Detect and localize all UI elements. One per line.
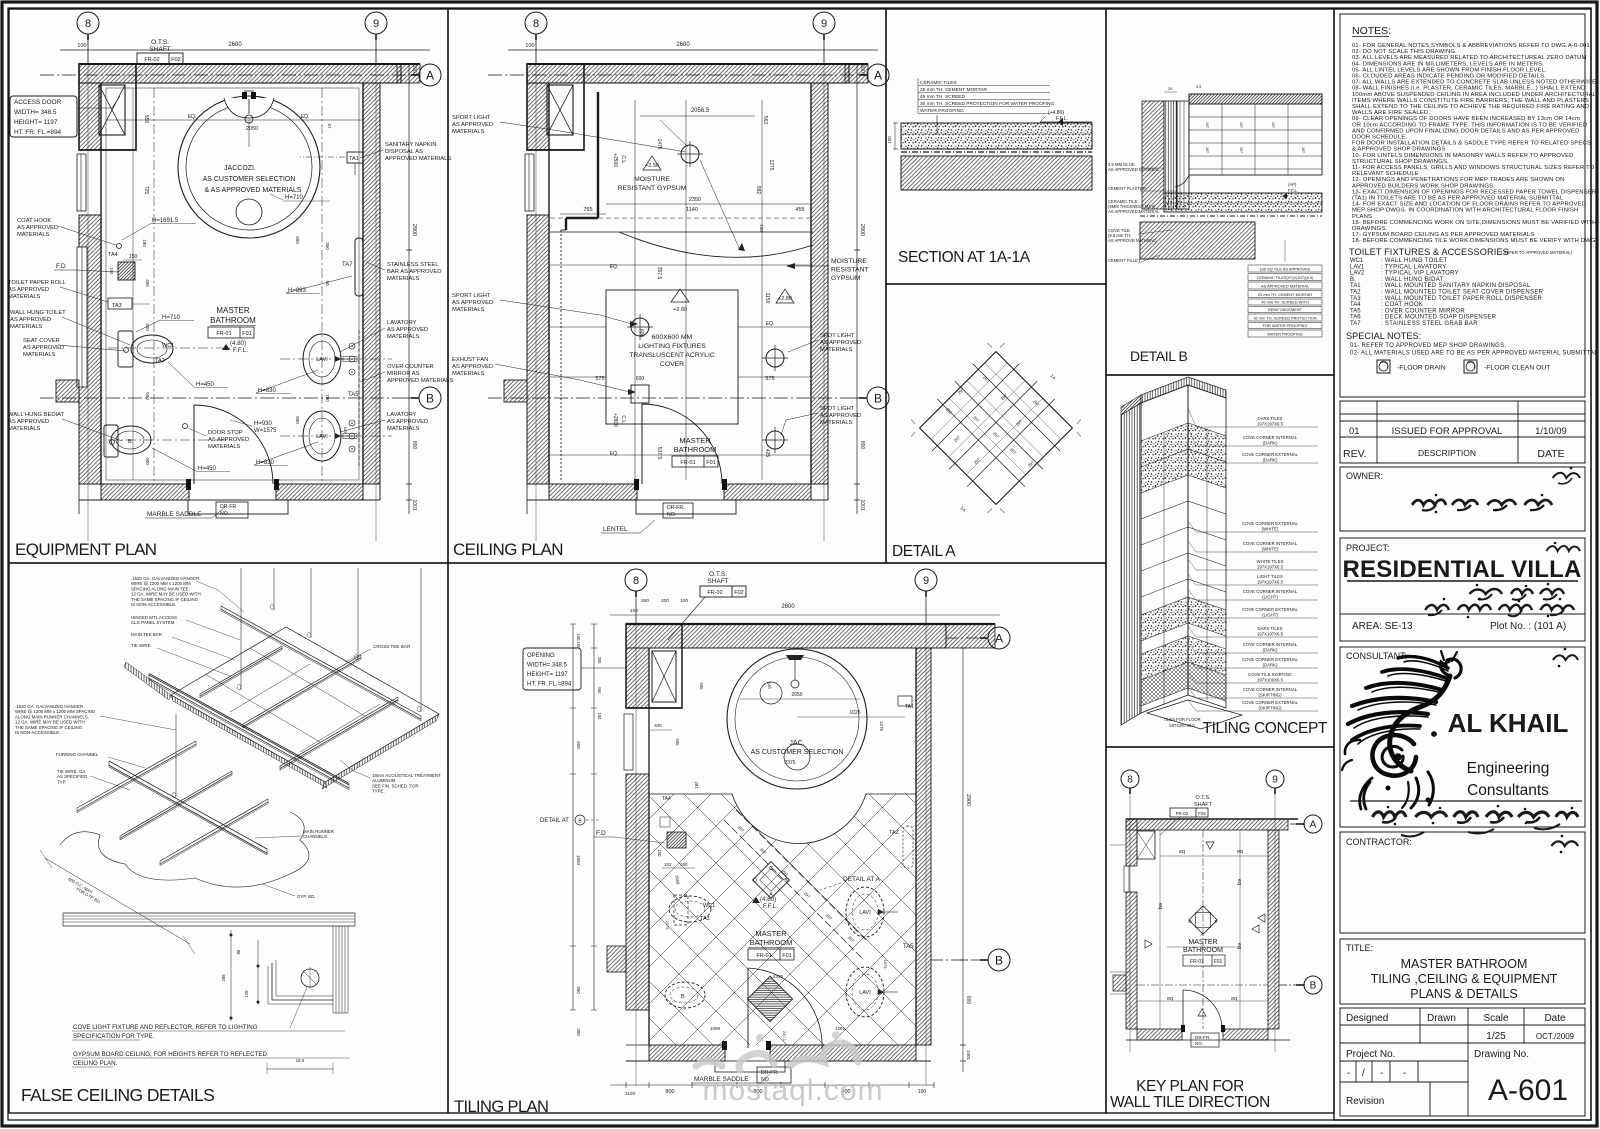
- svg-text:197: 197: [1271, 122, 1275, 128]
- svg-text:AS APPROVED: AS APPROVED: [387, 327, 428, 333]
- svg-text:197X100X6.5: 197X100X6.5: [1257, 678, 1284, 683]
- svg-text:AS APPROVED: AS APPROVED: [820, 340, 861, 346]
- svg-text:B.: B.: [1350, 277, 1356, 283]
- svg-text:B: B: [1214, 919, 1217, 924]
- svg-text:25 mm TH. CEMENT MORTAR: 25 mm TH. CEMENT MORTAR: [920, 87, 987, 93]
- svg-text:SPECIFICATION FOR TYPE.: SPECIFICATION FOR TYPE.: [73, 1033, 155, 1040]
- svg-text:563: 563: [762, 116, 768, 125]
- svg-text:H=1691.5: H=1691.5: [152, 218, 179, 224]
- svg-text:COAT HOOK: COAT HOOK: [17, 218, 51, 224]
- svg-text:GYP. BD.: GYP. BD.: [297, 894, 315, 899]
- svg-text:A: A: [1200, 932, 1203, 937]
- svg-text:COVE CORNER EXTERNAL: COVE CORNER EXTERNAL: [1242, 657, 1298, 662]
- svg-text:600: 600: [145, 392, 150, 400]
- svg-text:eq: eq: [1236, 879, 1242, 885]
- svg-text:800: 800: [411, 441, 417, 450]
- svg-text:H=710: H=710: [162, 315, 181, 321]
- svg-text:100: 100: [597, 713, 602, 721]
- svg-text:ACCESS DOOR: ACCESS DOOR: [14, 99, 62, 106]
- svg-text:SHAFT: SHAFT: [707, 578, 728, 585]
- svg-text:TA1: TA1: [349, 156, 359, 162]
- svg-text:1150: 1150: [764, 293, 770, 304]
- svg-text:JACCOZI.: JACCOZI.: [224, 165, 256, 172]
- svg-text:AS APPROVED: AS APPROVED: [23, 345, 64, 351]
- svg-text:1001: 1001: [411, 64, 417, 75]
- svg-text:180: 180: [142, 239, 147, 247]
- svg-text:9: 9: [923, 575, 929, 587]
- svg-text:HEIGHT= 1197: HEIGHT= 1197: [527, 672, 568, 678]
- svg-text:AS APPROVED: AS APPROVED: [452, 122, 493, 128]
- svg-text:CEMENT FILLET: CEMENT FILLET: [1108, 258, 1141, 263]
- svg-text:: STAINLESS STEEL GRAB BAR: : STAINLESS STEEL GRAB BAR: [1381, 321, 1478, 327]
- svg-text:17- GYPSUM BOARD CEILING AS P: 17- GYPSUM BOARD CEILING AS PER APPROVED…: [1352, 232, 1535, 238]
- svg-text:13- EXACT DIMENSION OF OPENIN: 13- EXACT DIMENSION OF OPENINGS FOR RECE…: [1352, 189, 1596, 195]
- svg-text:1001: 1001: [859, 64, 865, 75]
- svg-text:AS CUSTOMER SELECTION: AS CUSTOMER SELECTION: [203, 176, 296, 183]
- svg-text:18- BEFORE COMMENCING WORK ON: 18- BEFORE COMMENCING WORK ON SITE,DIMEN…: [1352, 220, 1597, 226]
- svg-text:TA4: TA4: [662, 796, 671, 802]
- svg-text:COVER: COVER: [660, 361, 684, 368]
- svg-text:AS APPROVED: AS APPROVED: [8, 419, 49, 425]
- svg-text:(SKIRTING): (SKIRTING): [1258, 693, 1282, 698]
- svg-text:F.F.L.: F.F.L.: [1288, 188, 1298, 193]
- svg-text:IS NON-ACCESSIBLE.: IS NON-ACCESSIBLE.: [131, 602, 176, 607]
- svg-text:A: A: [995, 631, 1003, 645]
- svg-text:455: 455: [795, 207, 804, 213]
- svg-text:WALL HUNG TOILET: WALL HUNG TOILET: [10, 310, 66, 316]
- svg-text:WHITE TILES: WHITE TILES: [1257, 559, 1284, 564]
- svg-text:LAVI: LAVI: [316, 357, 328, 363]
- svg-text:COVE TILE SKIRTING: COVE TILE SKIRTING: [1248, 672, 1292, 677]
- svg-text:1/25: 1/25: [1486, 1031, 1506, 1042]
- svg-text:12- OPENINGS AND PENETRATIONS: 12- OPENINGS AND PENETRATIONS FOR MEP TR…: [1352, 177, 1564, 183]
- svg-text:(DARK): (DARK): [1263, 648, 1278, 653]
- svg-text:AS APPROVED: AS APPROVED: [820, 413, 861, 419]
- svg-text:05- ALL LINTEL LEVELS ARE SHO: 05- ALL LINTEL LEVELS ARE SHOWN FROM FIN…: [1352, 67, 1547, 73]
- svg-text:SHAFT: SHAFT: [1194, 802, 1213, 808]
- svg-text:MASTER: MASTER: [679, 436, 711, 445]
- svg-text:WC1: WC1: [703, 903, 715, 909]
- svg-text:1001: 1001: [859, 499, 865, 510]
- svg-text:H=930: H=930: [254, 421, 273, 427]
- svg-text:WATER PROOFING: WATER PROOFING: [1267, 331, 1302, 336]
- svg-text:( REFER TO APPROVED MATERIAL): ( REFER TO APPROVED MATERIAL): [1501, 250, 1573, 255]
- svg-text:(4.80): (4.80): [230, 340, 246, 347]
- svg-text:(LIGHT): (LIGHT): [1262, 613, 1278, 618]
- svg-text:TILING PLAN: TILING PLAN: [454, 1098, 548, 1116]
- svg-text:REV.: REV.: [1343, 448, 1367, 460]
- svg-text:NO.: NO.: [667, 512, 676, 518]
- svg-text:(DARK): (DARK): [1263, 458, 1278, 463]
- svg-text:10- FOR LINTELS DIMENSIONS IN: 10- FOR LINTELS DIMENSIONS IN MASONRY WA…: [1352, 153, 1574, 159]
- svg-text:DOOR STOP: DOOR STOP: [208, 430, 243, 436]
- svg-text:TA2: TA2: [1350, 290, 1361, 296]
- svg-text:TA7: TA7: [342, 262, 353, 268]
- svg-text:F.F.L.: F.F.L.: [233, 347, 248, 354]
- svg-text:& AS APPROVED MATERIALS: & AS APPROVED MATERIALS: [204, 187, 301, 194]
- svg-text:Drawn: Drawn: [1427, 1013, 1456, 1024]
- svg-text:1069: 1069: [710, 1026, 721, 1031]
- svg-text:COVE CORNER INTERNAL: COVE CORNER INTERNAL: [1243, 435, 1298, 440]
- svg-text:MOISTURE: MOISTURE: [831, 258, 867, 265]
- svg-text:PROJECT:: PROJECT:: [1346, 543, 1390, 553]
- svg-text:2600: 2600: [676, 42, 690, 48]
- svg-text:CONTRACTOR:: CONTRACTOR:: [1346, 837, 1412, 847]
- svg-text:288: 288: [221, 974, 226, 982]
- svg-text:LIGHTING FIXTURES: LIGHTING FIXTURES: [638, 343, 706, 350]
- svg-text:9: 9: [1272, 775, 1278, 786]
- svg-text:460: 460: [576, 986, 581, 994]
- svg-text:HT. FR. FL.=894: HT. FR. FL.=894: [527, 682, 572, 688]
- svg-text:F01: F01: [706, 460, 715, 466]
- svg-text:2600: 2600: [228, 42, 242, 48]
- svg-text:08- WALL FINISHES (i.e. PLAST: 08- WALL FINISHES (i.e. PLASTER, CERAMIC…: [1352, 86, 1585, 92]
- svg-text:128: 128: [244, 990, 249, 998]
- svg-text:1140: 1140: [686, 207, 698, 213]
- svg-text:550: 550: [699, 683, 704, 691]
- svg-text:B: B: [1310, 981, 1317, 992]
- svg-text:DATE: DATE: [1537, 448, 1564, 460]
- svg-text:AS APPROVED: AS APPROVED: [452, 300, 493, 306]
- svg-text:400: 400: [145, 457, 150, 465]
- svg-text:MASTER: MASTER: [1188, 939, 1217, 946]
- svg-text:: TYPICAL LAVATORY: : TYPICAL LAVATORY: [1381, 264, 1447, 270]
- svg-text:TOILET PAPER ROLL: TOILET PAPER ROLL: [8, 280, 66, 286]
- svg-text:450: 450: [597, 687, 602, 695]
- svg-text:800: 800: [295, 416, 300, 424]
- svg-text:100: 100: [887, 136, 892, 144]
- svg-text:1001: 1001: [966, 1050, 971, 1061]
- svg-text:APPROVED MATERIALS: APPROVED MATERIALS: [387, 378, 453, 384]
- svg-text:LAVI: LAVI: [316, 434, 328, 440]
- svg-text:COVE CORNER EXTERNAL: COVE CORNER EXTERNAL: [1242, 607, 1298, 612]
- svg-text:SPORT LIGHT: SPORT LIGHT: [452, 293, 491, 299]
- svg-text:A: A: [874, 68, 882, 82]
- svg-text:537.5: 537.5: [656, 447, 662, 460]
- svg-text:MOISTURE: MOISTURE: [634, 176, 670, 183]
- svg-text:F01: F01: [242, 331, 251, 337]
- svg-text:1025: 1025: [849, 710, 860, 716]
- svg-text:PLANS & DETAILS: PLANS & DETAILS: [1410, 987, 1517, 1001]
- svg-text:09- CLEAR OPENINGS OF DOORS H: 09- CLEAR OPENINGS OF DOORS HAVE BEEN IN…: [1352, 116, 1580, 122]
- svg-text:4.5: 4.5: [1196, 85, 1201, 89]
- svg-text:: TYPICAL VIP LAVATORY: : TYPICAL VIP LAVATORY: [1381, 271, 1459, 277]
- svg-text:F.D: F.D: [56, 263, 66, 270]
- svg-text:TA4: TA4: [1350, 302, 1361, 308]
- svg-text:HT. FR. FL.=894: HT. FR. FL.=894: [14, 129, 62, 136]
- svg-text:2375: 2375: [665, 921, 670, 931]
- svg-text:(WHITE): (WHITE): [1262, 547, 1279, 552]
- svg-text:+2.80: +2.80: [778, 296, 792, 302]
- svg-text:H=710: H=710: [285, 195, 304, 201]
- svg-text:BATHROOM: BATHROOM: [750, 938, 793, 947]
- svg-text:07- ALL WALLS ARE EXTENDED TO: 07- ALL WALLS ARE EXTENDED TO CONCRETE S…: [1352, 80, 1596, 86]
- svg-text:WALL HUNG BEDIAT: WALL HUNG BEDIAT: [8, 412, 65, 418]
- svg-text:197: 197: [1239, 147, 1243, 153]
- svg-text:8: 8: [533, 18, 539, 30]
- svg-text:COVE CORNER EXTERNAL: COVE CORNER EXTERNAL: [1242, 452, 1298, 457]
- svg-text:AS APPROVED: AS APPROVED: [10, 317, 51, 323]
- svg-text:RESISTANT: RESISTANT: [831, 267, 869, 274]
- svg-text:03- ALL LEVELS ARE MEASURED R: 03- ALL LEVELS ARE MEASURED RELATED TO A…: [1352, 55, 1587, 61]
- svg-text:/: /: [1362, 1068, 1365, 1079]
- svg-text:EXHUST FAN: EXHUST FAN: [452, 357, 488, 363]
- svg-text:TAZ: TAZ: [889, 830, 900, 836]
- svg-text:MAIN TEE BAR: MAIN TEE BAR: [131, 632, 162, 637]
- svg-text:TA3: TA3: [1350, 296, 1361, 302]
- svg-text:18- BEFORE COMMENCING TILE WO: 18- BEFORE COMMENCING TILE WORK DIMENSIO…: [1352, 238, 1598, 244]
- svg-text:100 SQ TILE AS APPROVED: 100 SQ TILE AS APPROVED: [1260, 266, 1311, 271]
- svg-text:SPOT LIGHT: SPOT LIGHT: [820, 333, 855, 339]
- svg-text:SPORT LIGHT: SPORT LIGHT: [452, 115, 491, 121]
- svg-text:& APPROVED SHOP DRAWINGS: & APPROVED SHOP DRAWINGS: [1352, 147, 1446, 153]
- svg-text:LIGHT TILES: LIGHT TILES: [1257, 574, 1283, 579]
- svg-text:FR-02: FR-02: [144, 57, 159, 63]
- svg-text:297X297X6.5: 297X297X6.5: [1169, 723, 1195, 728]
- svg-text:AS APPROVED: AS APPROVED: [17, 225, 58, 231]
- svg-text:COVE CORNER EXTERNAL: COVE CORNER EXTERNAL: [1242, 521, 1298, 526]
- svg-text:C.L.: C.L.: [620, 415, 626, 424]
- svg-text:MATERIALS: MATERIALS: [387, 426, 420, 432]
- svg-text:TA2: TA2: [155, 358, 165, 364]
- svg-text:CERAMIC TILES: CERAMIC TILES: [920, 80, 957, 86]
- svg-text:LAVATORY: LAVATORY: [387, 412, 417, 418]
- svg-text:197X197X6.5: 197X197X6.5: [1257, 422, 1284, 427]
- svg-text:MASTER: MASTER: [216, 306, 250, 315]
- svg-text:TA5: TA5: [1350, 308, 1361, 314]
- svg-text:197X197X6.5: 197X197X6.5: [1257, 632, 1284, 637]
- svg-text:+2800: +2800: [612, 413, 618, 427]
- svg-text:TYPE.: TYPE.: [372, 789, 385, 794]
- svg-text:600: 600: [576, 741, 581, 749]
- svg-text:AS APPROVED MATERIAL: AS APPROVED MATERIAL: [1108, 209, 1160, 214]
- svg-text:800: 800: [665, 1089, 674, 1095]
- svg-text:OWNER:: OWNER:: [1346, 471, 1383, 481]
- svg-text:SECTION AT 1A-1A: SECTION AT 1A-1A: [898, 249, 1031, 266]
- svg-text:F02: F02: [171, 57, 180, 63]
- svg-text:SPECIAL NOTES:: SPECIAL NOTES:: [1346, 331, 1421, 341]
- svg-text:B.: B.: [128, 439, 134, 445]
- svg-text:MEP SHOP DWGS. IN COORDINATION: MEP SHOP DWGS. IN COORDINATION WITH ARCH…: [1352, 208, 1578, 214]
- svg-text:MATERIALS: MATERIALS: [452, 307, 485, 313]
- svg-text:495: 495: [145, 279, 150, 287]
- svg-text:MATERIALS: MATERIALS: [10, 324, 43, 330]
- svg-text:COVE CORNER INTERNAL: COVE CORNER INTERNAL: [1243, 589, 1298, 594]
- svg-text:2050: 2050: [791, 692, 802, 698]
- svg-text:CHANNELS: CHANNELS: [303, 834, 327, 839]
- svg-text:CEMENT PLASTER: CEMENT PLASTER: [1108, 186, 1146, 191]
- svg-text:25: 25: [1168, 86, 1173, 91]
- svg-text:100: 100: [77, 43, 86, 49]
- svg-text:RESISTANT GYPSUM: RESISTANT GYPSUM: [618, 185, 687, 192]
- svg-text:AS APPROVED: AS APPROVED: [387, 419, 428, 425]
- svg-text:600: 600: [636, 376, 645, 382]
- svg-text:2900: 2900: [859, 224, 865, 236]
- svg-text:TA1: TA1: [905, 704, 914, 710]
- svg-text:APPROVED BUILDERS WORK SHOP DR: APPROVED BUILDERS WORK SHOP DRAWINGS.: [1352, 183, 1495, 189]
- svg-text:130: 130: [759, 224, 764, 232]
- svg-text:MIRROR AS: MIRROR AS: [387, 371, 420, 377]
- svg-text:A: A: [1310, 820, 1317, 831]
- svg-text:LAVI: LAVI: [859, 910, 871, 916]
- svg-text:NO.: NO.: [220, 511, 229, 517]
- svg-text:DARK TILES: DARK TILES: [1258, 626, 1283, 631]
- svg-text:Scale: Scale: [1483, 1013, 1508, 1024]
- svg-text:DETAIL AT A: DETAIL AT A: [843, 876, 881, 883]
- svg-text:F.D: F.D: [596, 830, 606, 837]
- svg-text:F02: F02: [1198, 811, 1206, 816]
- svg-text:FR-02: FR-02: [707, 590, 722, 596]
- svg-text:COVE CORNER INTERNAL: COVE CORNER INTERNAL: [1243, 541, 1298, 546]
- svg-text:DETAIL A: DETAIL A: [892, 543, 956, 560]
- svg-text:TA7: TA7: [1350, 321, 1361, 327]
- svg-text:700: 700: [325, 394, 330, 402]
- svg-text:GYPSUM BOARD CEILING, FOR HEIG: GYPSUM BOARD CEILING, FOR HEIGHTS REFER …: [73, 1051, 268, 1058]
- svg-text:(TA1) IN TOILETS ARE TO BE AS: (TA1) IN TOILETS ARE TO BE AS PER APPROV…: [1352, 196, 1564, 202]
- svg-text:30 mm TH. SCREED PROTECTION: 30 mm TH. SCREED PROTECTION: [1253, 315, 1316, 320]
- svg-text:EQ.: EQ.: [766, 321, 775, 327]
- svg-text:88: 88: [236, 949, 241, 954]
- svg-text:MATERIALS: MATERIALS: [820, 420, 853, 426]
- svg-text:D: D: [753, 878, 757, 884]
- svg-text:NOTES:: NOTES:: [1352, 25, 1391, 37]
- svg-text:30 mm TH. SCREED PROTECTION FO: 30 mm TH. SCREED PROTECTION FOR WATER PR…: [920, 101, 1054, 107]
- svg-text:SANITARY NAPKIN: SANITARY NAPKIN: [385, 142, 437, 148]
- svg-text:WIDTH= 348.5: WIDTH= 348.5: [527, 663, 568, 669]
- svg-text:600: 600: [295, 236, 300, 244]
- svg-text:150: 150: [129, 254, 138, 260]
- svg-text:550: 550: [143, 115, 149, 124]
- svg-text:eq: eq: [1237, 849, 1243, 855]
- svg-text:JAC.: JAC.: [789, 740, 804, 747]
- svg-text:LAV2: LAV2: [1350, 271, 1365, 277]
- svg-text:AS APPROVED: AS APPROVED: [8, 287, 49, 293]
- svg-text:H=450: H=450: [196, 382, 215, 388]
- svg-text:C: C: [769, 866, 773, 872]
- svg-text:1281: 1281: [835, 1026, 846, 1031]
- svg-text:MATERIALS: MATERIALS: [208, 444, 241, 450]
- svg-text:FR-01: FR-01: [680, 460, 695, 466]
- svg-text:SHALL EXTEND TO THE CEILING TO: SHALL EXTEND TO THE CEILING TO ACHIEVE T…: [1352, 104, 1589, 110]
- svg-text:COVE CORNER EXTERNAL: COVE CORNER EXTERNAL: [1242, 700, 1298, 705]
- svg-text:RELEVANT SCHEDULE: RELEVANT SCHEDULE: [1352, 171, 1419, 177]
- svg-text:APPROVED MATERIALS: APPROVED MATERIALS: [385, 156, 451, 162]
- svg-text:WIDTH= 348.5: WIDTH= 348.5: [14, 109, 57, 116]
- svg-text:TILING ,CEILING & EQUIPMENT: TILING ,CEILING & EQUIPMENT: [1371, 972, 1558, 986]
- svg-text:-: -: [1380, 1068, 1383, 1079]
- svg-text:AL KHAIL: AL KHAIL: [1448, 708, 1569, 738]
- svg-text:800: 800: [859, 441, 865, 450]
- svg-text:BATHROOM: BATHROOM: [674, 445, 717, 454]
- svg-text:TA5: TA5: [348, 392, 359, 398]
- svg-text:FR-01: FR-01: [216, 331, 231, 337]
- svg-text:2375: 2375: [773, 974, 784, 979]
- svg-text:FR-01: FR-01: [756, 953, 771, 959]
- svg-text:FR-02: FR-02: [1176, 811, 1189, 816]
- svg-text:eq: eq: [1231, 996, 1237, 1002]
- svg-text:MATERIALS: MATERIALS: [452, 371, 485, 377]
- svg-text:COVE LIGHT FIXTURE AND REFLECT: COVE LIGHT FIXTURE AND REFLECTOR, REFER …: [73, 1024, 258, 1031]
- svg-text:01- FOR GENERAL NOTES,SYMBOLS: 01- FOR GENERAL NOTES,SYMBOLS & ABBREVIA…: [1352, 43, 1590, 49]
- svg-text:TA5: TA5: [903, 944, 914, 950]
- svg-text:OR 10cm ACCORDING TO FRAME TYP: OR 10cm ACCORDING TO FRAME TYPE. THIS IN…: [1352, 122, 1587, 128]
- svg-text:EQ.: EQ.: [610, 264, 619, 270]
- svg-text:AS APPROVED MATERIAL: AS APPROVED MATERIAL: [1261, 283, 1310, 288]
- svg-text:150: 150: [109, 268, 114, 276]
- svg-text:15 II: 15 II: [296, 1058, 305, 1063]
- svg-text:50: 50: [325, 280, 330, 286]
- svg-text:LAVATORY: LAVATORY: [387, 320, 417, 326]
- svg-text:F01: F01: [1214, 959, 1223, 965]
- svg-text:02- ALL MATERIALS USED ARE TO: 02- ALL MATERIALS USED ARE TO BE AS PER …: [1350, 351, 1598, 357]
- svg-text:DR-FR.: DR-FR.: [1195, 1035, 1211, 1040]
- svg-text:281: 281: [694, 782, 699, 790]
- svg-text:(AP): (AP): [1288, 182, 1297, 187]
- svg-text:600X600 MM: 600X600 MM: [652, 334, 693, 341]
- svg-text:AS APPROVED: AS APPROVED: [452, 364, 493, 370]
- svg-text:eq: eq: [1157, 903, 1163, 909]
- svg-text:MATERIALS: MATERIALS: [452, 129, 485, 135]
- svg-text:152: 152: [664, 862, 672, 867]
- svg-text:COVE CORNER INTERNAL: COVE CORNER INTERNAL: [1243, 642, 1298, 647]
- svg-text:AS APPROVED: AS APPROVED: [208, 437, 249, 443]
- svg-text:eq: eq: [1179, 849, 1185, 855]
- svg-text:1275: 1275: [879, 721, 884, 732]
- svg-text:Engineering: Engineering: [1467, 760, 1550, 777]
- svg-text:TOILET FIXTURES & ACCESSORIES: TOILET FIXTURES & ACCESSORIES: [1349, 247, 1509, 257]
- svg-text:TA1: TA1: [1350, 283, 1361, 289]
- svg-text:MARBLE SADDLE: MARBLE SADDLE: [147, 511, 202, 518]
- svg-text:ITEMS WHERE WALLS CONSTITUTE F: ITEMS WHERE WALLS CONSTITUTE FIRE BARRIE…: [1352, 98, 1589, 104]
- svg-text:DARK TILES: DARK TILES: [1258, 416, 1283, 421]
- svg-text:AS CUSTOMER SELECTION: AS CUSTOMER SELECTION: [751, 749, 844, 756]
- svg-text:2600: 2600: [781, 604, 795, 610]
- svg-text:100: 100: [680, 598, 688, 604]
- svg-text:CERAMIC TILES(9T)X(10T)(6.5): CERAMIC TILES(9T)X(10T)(6.5): [1257, 275, 1314, 280]
- svg-text:-FLOOR DRAIN: -FLOOR DRAIN: [1397, 365, 1446, 372]
- svg-text:MASTER BATHROOM: MASTER BATHROOM: [1401, 957, 1528, 971]
- svg-text:SEAT COVER: SEAT COVER: [23, 338, 60, 344]
- svg-text:Drawing No.: Drawing No.: [1474, 1049, 1529, 1060]
- svg-text:: OVER COUNTER MIRROR: : OVER COUNTER MIRROR: [1381, 308, 1465, 314]
- svg-text:eq: eq: [1167, 996, 1173, 1002]
- svg-text:REINFORCEMENT: REINFORCEMENT: [1268, 307, 1303, 312]
- svg-text:OCT./2009: OCT./2009: [1536, 1032, 1575, 1041]
- svg-text:9: 9: [821, 18, 827, 30]
- svg-text:EQ.: EQ.: [188, 114, 197, 120]
- svg-text:755: 755: [583, 207, 592, 213]
- svg-text:+2.80: +2.80: [673, 307, 687, 313]
- svg-text:04- DIMENSIONS ARE IN MILLIME: 04- DIMENSIONS ARE IN MILLIMETERS, LEVEL…: [1352, 61, 1544, 67]
- svg-text:WALLS ARE FIRE SEALED.: WALLS ARE FIRE SEALED.: [1352, 110, 1430, 116]
- svg-text:550: 550: [675, 739, 680, 747]
- svg-text:MATERIALS: MATERIALS: [8, 294, 41, 300]
- svg-text:F.F.L.: F.F.L.: [763, 903, 778, 910]
- svg-text:01- REFER TO APPROVED MEP SHO: 01- REFER TO APPROVED MEP SHOP DRAWINGS.: [1350, 343, 1506, 349]
- svg-text:FALSE CEILING DETAILS: FALSE CEILING DETAILS: [21, 1085, 214, 1105]
- svg-text:1550: 1550: [576, 855, 581, 866]
- svg-text:DR-FR.: DR-FR.: [667, 505, 685, 511]
- svg-text:200: 200: [661, 598, 669, 604]
- svg-text:GYPSUM: GYPSUM: [831, 275, 861, 282]
- svg-text:-: -: [1403, 1068, 1406, 1079]
- svg-text:STAINLESS STEEL: STAINLESS STEEL: [387, 262, 439, 268]
- svg-text:IS NON-ACCESSIBLE.: IS NON-ACCESSIBLE.: [15, 730, 60, 735]
- svg-text:DETAIL AT: DETAIL AT: [540, 818, 569, 824]
- svg-text:-FLOOR CLEAN OUT: -FLOOR CLEAN OUT: [1484, 365, 1550, 372]
- svg-text:CLG PANEL SYSTEM: CLG PANEL SYSTEM: [131, 620, 175, 625]
- svg-text:TYP.: TYP.: [57, 779, 66, 784]
